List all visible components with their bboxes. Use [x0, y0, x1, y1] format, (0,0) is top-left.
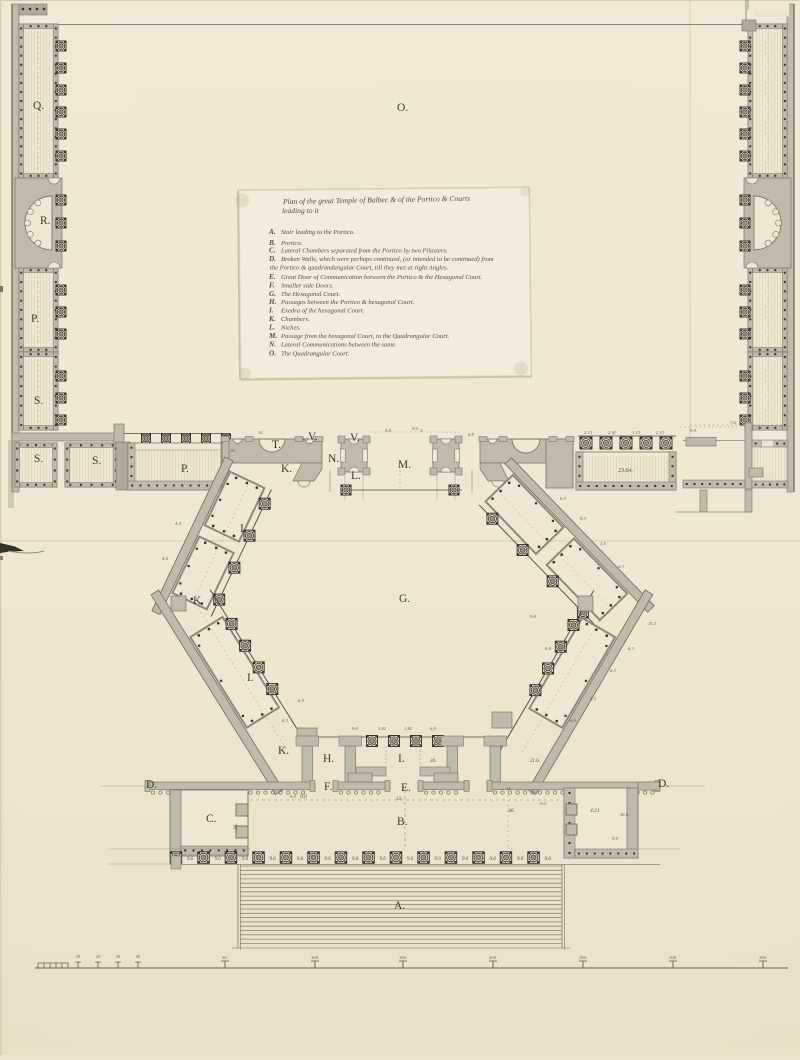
svg-text:Stair leading to the Portico.: Stair leading to the Portico.	[281, 229, 355, 236]
svg-text:6.8.: 6.8.	[545, 646, 552, 651]
svg-text:150.: 150.	[399, 955, 407, 960]
svg-text:N.: N.	[268, 341, 276, 349]
svg-text:M.: M.	[398, 459, 411, 471]
svg-text:9.6: 9.6	[545, 857, 552, 862]
svg-text:2.13: 2.13	[656, 430, 665, 435]
svg-text:4.21: 4.21	[590, 807, 600, 814]
svg-text:O.: O.	[397, 102, 408, 114]
svg-text:50.: 50.	[222, 955, 228, 960]
svg-text:H.: H.	[268, 298, 277, 306]
svg-text:9.6: 9.6	[435, 857, 442, 862]
svg-text:Exedra of the hexagonal Court.: Exedra of the hexagonal Court.	[280, 308, 365, 315]
svg-text:9.8: 9.8	[530, 614, 536, 619]
svg-text:3.6: 3.6	[600, 541, 606, 546]
svg-text:18.: 18.	[230, 448, 236, 453]
svg-text:C.: C.	[269, 247, 276, 255]
svg-text:9.6: 9.6	[407, 857, 414, 862]
svg-text:9.6.: 9.6.	[412, 426, 419, 431]
svg-text:T.: T.	[272, 439, 281, 451]
svg-text:2.41: 2.41	[608, 430, 616, 435]
svg-text:Great Door of Communication be: Great Door of Communication between the …	[281, 274, 483, 281]
svg-text:6.9: 6.9	[468, 432, 474, 437]
svg-text:14.: 14.	[258, 430, 264, 435]
svg-text:I.: I.	[398, 753, 405, 765]
svg-text:I.: I.	[247, 672, 254, 684]
svg-text:21.6.: 21.6.	[530, 759, 540, 764]
svg-text:23.64.: 23.64.	[618, 467, 633, 474]
svg-text:M.: M.	[268, 332, 277, 340]
svg-text:A.: A.	[268, 228, 276, 236]
svg-text:100.: 100.	[311, 955, 319, 960]
svg-text:A.: A.	[394, 900, 405, 912]
svg-text:9.0: 9.0	[300, 794, 307, 800]
svg-text:9.6: 9.6	[325, 857, 332, 862]
svg-text:Niches.: Niches.	[280, 325, 301, 332]
svg-text:P.: P.	[31, 313, 39, 325]
svg-text:Passages between the Portico &: Passages between the Portico & hexagonal…	[280, 299, 415, 306]
svg-text:30.: 30.	[430, 759, 436, 764]
svg-text:6.3: 6.3	[590, 696, 596, 701]
svg-text:9.6: 9.6	[352, 857, 359, 862]
svg-text:9.6: 9.6	[297, 857, 304, 862]
svg-text:200.: 200.	[489, 955, 497, 960]
svg-text:3.: 3.	[420, 428, 423, 433]
svg-text:6.9: 6.9	[430, 726, 436, 731]
svg-text:30: 30	[116, 954, 120, 959]
svg-text:350.: 350.	[759, 955, 767, 960]
svg-text:L.: L.	[268, 324, 275, 332]
svg-text:S.: S.	[92, 455, 101, 467]
svg-text:36.: 36.	[233, 823, 239, 831]
svg-text:9.9.: 9.9.	[690, 428, 697, 433]
svg-text:1.92: 1.92	[378, 726, 387, 731]
svg-text:15.2.: 15.2.	[648, 621, 657, 626]
svg-text:300.: 300.	[669, 955, 677, 960]
svg-text:10: 10	[76, 954, 80, 959]
svg-text:1.13: 1.13	[632, 430, 641, 435]
svg-text:R.: R.	[40, 215, 51, 227]
svg-text:B.: B.	[397, 816, 408, 828]
svg-text:K.: K.	[268, 315, 276, 323]
svg-text:6.3: 6.3	[618, 564, 624, 569]
svg-text:Q.: Q.	[33, 100, 44, 112]
svg-text:2.13: 2.13	[584, 430, 593, 435]
svg-text:G.: G.	[269, 290, 276, 298]
svg-text:O.: O.	[269, 350, 276, 358]
svg-text:9.6: 9.6	[462, 857, 469, 862]
svg-text:D.: D.	[658, 778, 669, 790]
svg-text:G.: G.	[399, 593, 410, 605]
svg-text:V.: V.	[350, 432, 360, 444]
svg-text:S.: S.	[34, 395, 43, 407]
svg-text:9.3: 9.3	[580, 516, 586, 521]
svg-text:Lateral Communications between: Lateral Communications between the same.	[280, 342, 397, 349]
svg-text:Lateral Chambers separated fro: Lateral Chambers separated from the Port…	[280, 248, 448, 255]
svg-text:9.6: 9.6	[352, 726, 358, 731]
svg-text:20: 20	[96, 954, 100, 959]
svg-text:9.0.: 9.0.	[540, 801, 547, 806]
svg-text:9.6: 9.6	[490, 857, 497, 862]
svg-text:4.4: 4.4	[162, 556, 168, 561]
svg-text:9.6: 9.6	[517, 857, 524, 862]
svg-text:9.6: 9.6	[242, 857, 249, 862]
svg-text:9.6: 9.6	[380, 857, 387, 862]
svg-text:6.3: 6.3	[282, 718, 288, 723]
svg-text:N.: N.	[328, 453, 339, 465]
svg-text:K.: K.	[278, 745, 289, 757]
svg-text:9.6: 9.6	[270, 857, 277, 862]
svg-text:leading to it: leading to it	[282, 206, 320, 215]
svg-text:Chambers.: Chambers.	[281, 316, 310, 323]
svg-text:D.: D.	[268, 255, 276, 263]
svg-text:The Quadrangular Court.: The Quadrangular Court.	[281, 351, 350, 358]
svg-text:C.: C.	[206, 813, 217, 825]
svg-text:Smaller side Doors.: Smaller side Doors.	[281, 283, 334, 290]
svg-text:36 6.: 36 6.	[620, 812, 629, 817]
svg-text:9.8.: 9.8.	[385, 428, 392, 433]
svg-text:6.3: 6.3	[610, 668, 616, 673]
svg-text:6.3: 6.3	[560, 496, 566, 501]
svg-text:H.: H.	[323, 753, 334, 765]
svg-text:I.: I.	[268, 307, 274, 315]
svg-text:the Portico & quadrandangular: the Portico & quadrandangular Court, til…	[270, 265, 449, 272]
svg-text:6.9: 6.9	[298, 698, 304, 703]
svg-text:9.9: 9.9	[612, 836, 618, 841]
svg-text:F.: F.	[269, 282, 275, 290]
svg-text:250.: 250.	[579, 955, 587, 960]
svg-text:K.: K.	[281, 463, 292, 475]
svg-text:4.4: 4.4	[175, 521, 181, 526]
svg-text:36.: 36.	[507, 808, 515, 814]
svg-text:The Hexagonal Court.: The Hexagonal Court.	[281, 291, 341, 298]
svg-text:9.6: 9.6	[215, 857, 222, 862]
svg-text:I.: I.	[240, 523, 247, 535]
svg-text:E.: E.	[401, 782, 411, 794]
svg-text:6.9: 6.9	[570, 718, 576, 723]
svg-text:F.: F.	[324, 781, 332, 793]
svg-text:E.: E.	[268, 273, 276, 281]
svg-text:9.0.: 9.0.	[290, 794, 297, 799]
svg-text:D.: D.	[146, 779, 157, 791]
svg-text:14.: 14.	[506, 786, 512, 791]
svg-text:V.: V.	[308, 431, 318, 443]
svg-text:L.: L.	[351, 470, 361, 482]
svg-text:6.3: 6.3	[628, 646, 634, 651]
svg-text:13.: 13.	[396, 797, 402, 802]
svg-text:P.: P.	[181, 463, 189, 475]
svg-text:9.6: 9.6	[187, 857, 194, 862]
svg-text:40: 40	[136, 954, 140, 959]
svg-text:Broken Walls, which were perha: Broken Walls, which were perhaps continu…	[281, 256, 494, 263]
svg-text:S.: S.	[34, 453, 43, 465]
svg-text:Portico.: Portico.	[280, 240, 303, 247]
svg-text:K.: K.	[193, 595, 204, 607]
svg-text:Passage from the hexagonal Cou: Passage from the hexagonal Court, to the…	[280, 333, 450, 340]
svg-text:1.91: 1.91	[404, 726, 412, 731]
svg-text:7.6.: 7.6.	[730, 420, 737, 425]
